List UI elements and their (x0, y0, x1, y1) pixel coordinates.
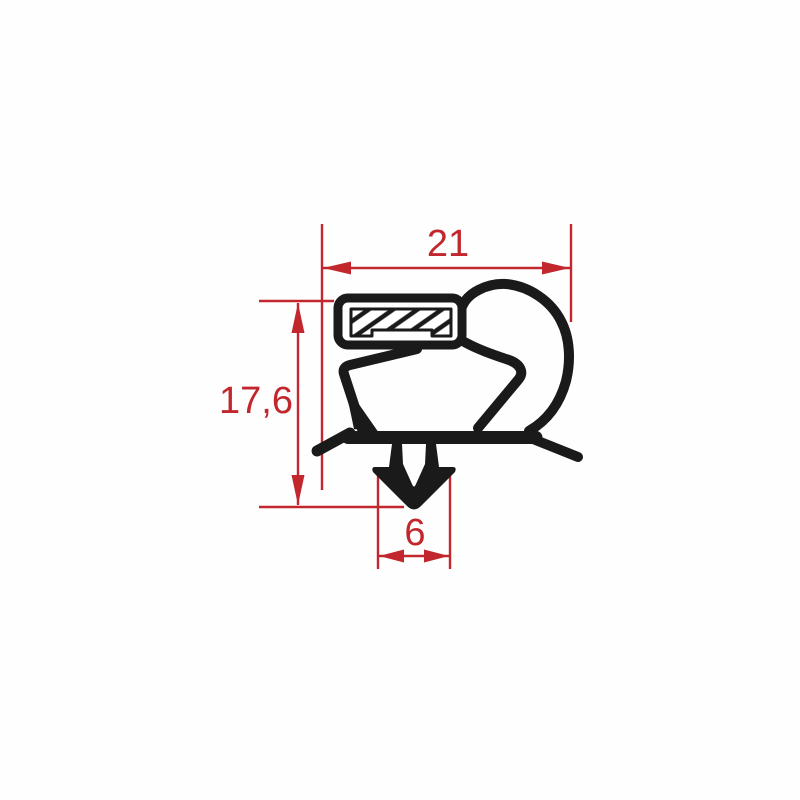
barbed-dart (372, 444, 455, 510)
arrow-left-icon (323, 262, 351, 275)
arrow-left-icon (379, 550, 404, 563)
height-dimension-label: 17,6 (219, 380, 293, 422)
drawing-canvas: 21 17,6 6 (0, 0, 800, 800)
arrow-right-icon (424, 550, 449, 563)
arrow-down-icon (292, 475, 305, 505)
inner-web (461, 340, 521, 428)
arrow-up-icon (292, 303, 305, 333)
arrow-right-icon (542, 262, 570, 275)
technical-drawing: 21 17,6 6 (0, 0, 800, 800)
width-dimension-label: 21 (427, 223, 469, 265)
gasket-profile (317, 284, 578, 510)
right-tail (533, 439, 578, 457)
dimension-width: 21 (322, 223, 571, 490)
dart-dimension-label: 6 (404, 512, 425, 554)
